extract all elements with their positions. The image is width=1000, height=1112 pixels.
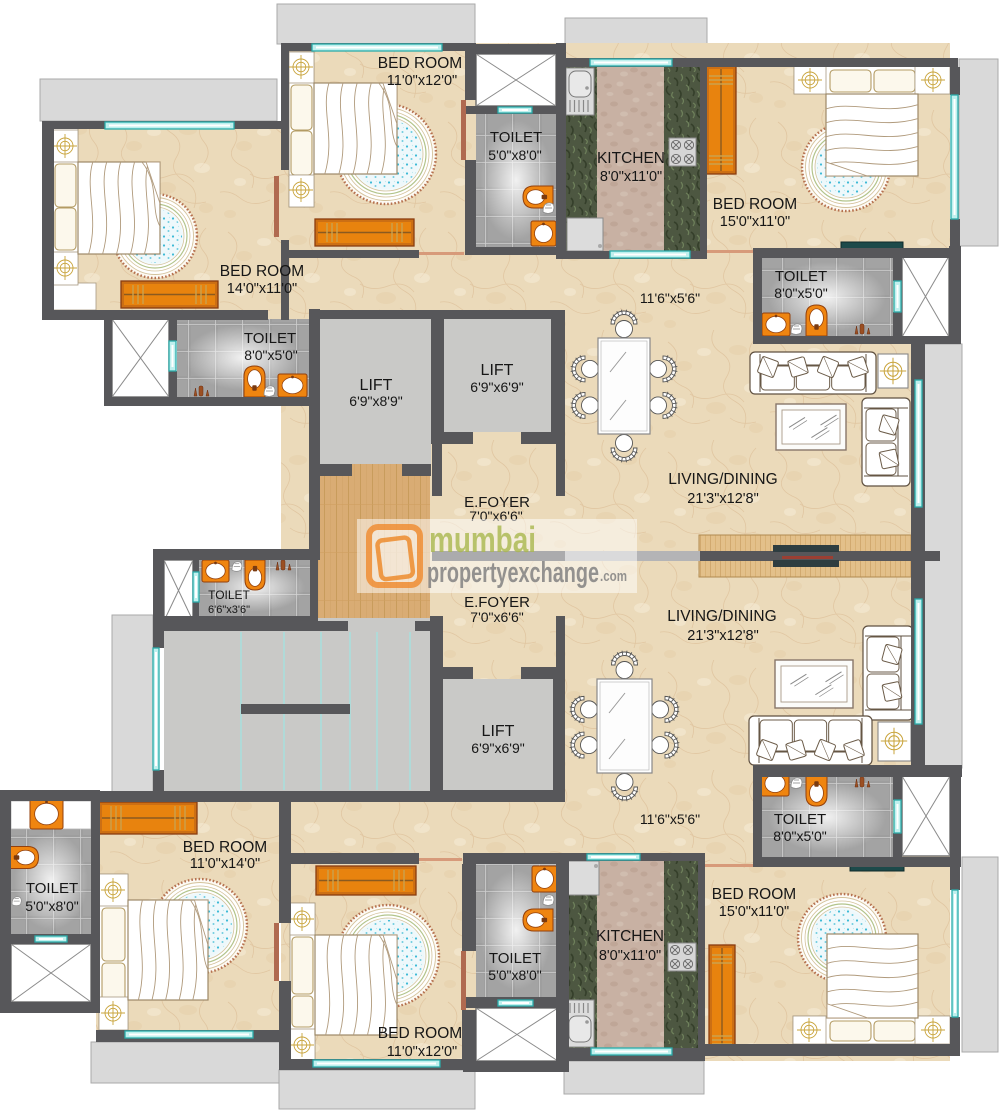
- svg-text:LIFT: LIFT: [360, 377, 393, 394]
- svg-text:11'6"x5'6": 11'6"x5'6": [640, 811, 700, 827]
- svg-text:propertyexchange: propertyexchange: [427, 557, 599, 589]
- svg-text:KITCHEN: KITCHEN: [596, 928, 664, 945]
- svg-text:6'9"x6'9": 6'9"x6'9": [470, 379, 523, 395]
- svg-text:LIVING/DINING: LIVING/DINING: [668, 471, 777, 488]
- svg-text:.com: .com: [600, 568, 627, 585]
- svg-text:11'0"x12'0": 11'0"x12'0": [387, 1044, 457, 1060]
- svg-text:15'0"x11'0": 15'0"x11'0": [720, 214, 790, 230]
- svg-text:TOILET: TOILET: [244, 330, 296, 347]
- svg-text:TOILET: TOILET: [208, 588, 250, 602]
- svg-text:21'3"x12'8": 21'3"x12'8": [687, 628, 758, 644]
- svg-text:5'0"x8'0": 5'0"x8'0": [25, 898, 78, 914]
- svg-text:8'0"x5'0": 8'0"x5'0": [773, 828, 826, 844]
- svg-text:21'3"x12'8": 21'3"x12'8": [687, 491, 758, 507]
- svg-text:15'0"x11'0": 15'0"x11'0": [719, 904, 789, 920]
- svg-text:6'9"x6'9": 6'9"x6'9": [471, 740, 524, 756]
- svg-text:11'6"x5'6": 11'6"x5'6": [640, 290, 700, 306]
- svg-text:LIVING/DINING: LIVING/DINING: [667, 608, 776, 625]
- svg-text:TOILET: TOILET: [26, 880, 78, 897]
- svg-text:BED ROOM: BED ROOM: [220, 263, 304, 280]
- svg-text:11'0"x14'0": 11'0"x14'0": [190, 856, 260, 872]
- svg-text:6'6"x3'6": 6'6"x3'6": [208, 604, 250, 616]
- svg-text:BED ROOM: BED ROOM: [378, 55, 462, 72]
- svg-text:14'0"x11'0": 14'0"x11'0": [227, 281, 297, 297]
- svg-text:BED ROOM: BED ROOM: [378, 1025, 462, 1042]
- svg-text:11'0"x12'0": 11'0"x12'0": [387, 73, 457, 89]
- svg-text:5'0"x8'0": 5'0"x8'0": [488, 147, 541, 163]
- svg-text:TOILET: TOILET: [774, 811, 826, 828]
- svg-text:BED ROOM: BED ROOM: [712, 886, 796, 903]
- svg-text:BED ROOM: BED ROOM: [713, 196, 797, 213]
- svg-text:LIFT: LIFT: [482, 723, 515, 740]
- svg-text:KITCHEN: KITCHEN: [597, 150, 665, 167]
- svg-text:8'0"x5'0": 8'0"x5'0": [774, 285, 827, 301]
- svg-text:TOILET: TOILET: [490, 129, 542, 146]
- svg-text:6'9"x8'9": 6'9"x8'9": [349, 393, 402, 409]
- svg-text:8'0"x11'0": 8'0"x11'0": [600, 169, 662, 185]
- svg-text:8'0"x11'0": 8'0"x11'0": [599, 948, 661, 964]
- svg-text:7'0"x6'6": 7'0"x6'6": [470, 609, 523, 625]
- svg-text:mumbai: mumbai: [429, 519, 536, 560]
- svg-text:5'0"x8'0": 5'0"x8'0": [488, 967, 541, 983]
- svg-text:TOILET: TOILET: [489, 950, 541, 967]
- svg-text:LIFT: LIFT: [481, 362, 514, 379]
- svg-text:BED ROOM: BED ROOM: [183, 839, 267, 856]
- svg-text:TOILET: TOILET: [775, 268, 827, 285]
- svg-text:8'0"x5'0": 8'0"x5'0": [244, 347, 297, 363]
